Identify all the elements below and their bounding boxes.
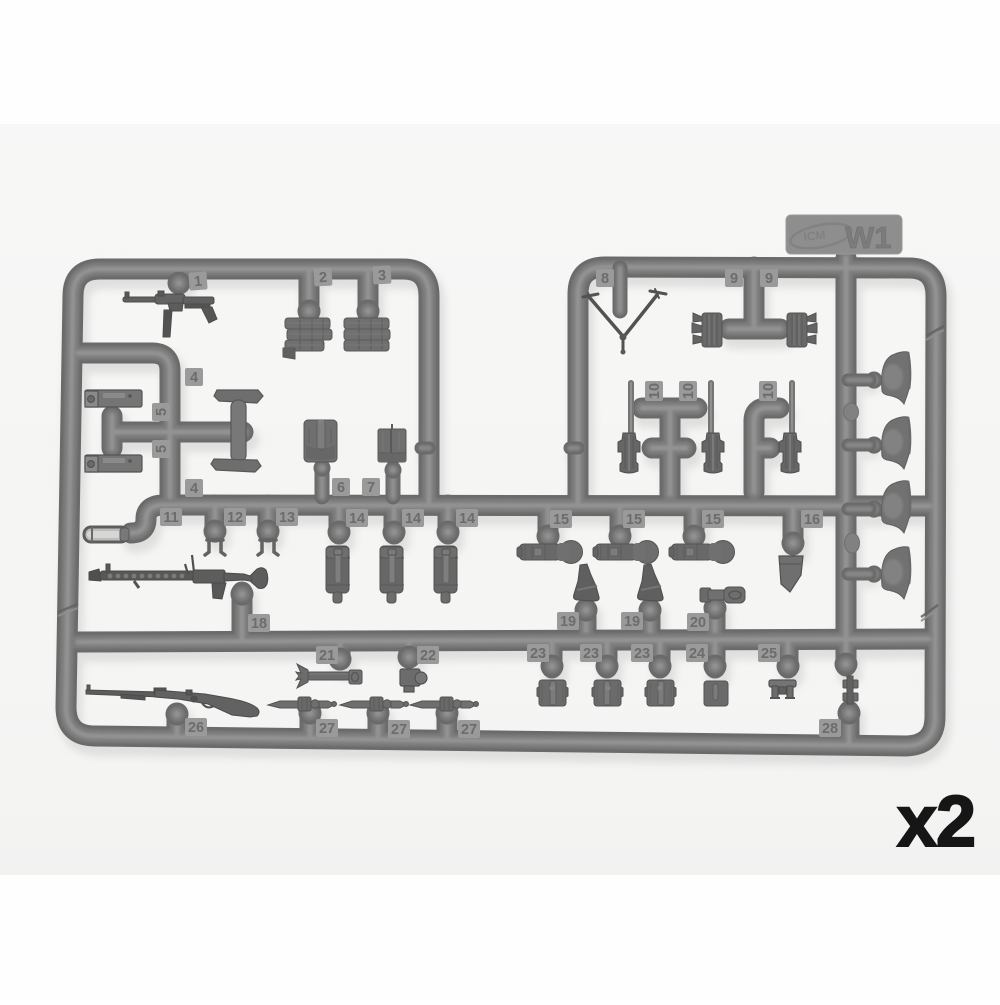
svg-text:23: 23 [634,646,650,662]
svg-text:15: 15 [705,512,721,528]
svg-text:16: 16 [804,512,820,528]
svg-text:23: 23 [583,646,599,662]
svg-text:5: 5 [154,445,170,453]
svg-text:10: 10 [681,383,697,399]
svg-text:19: 19 [560,614,576,630]
svg-text:24: 24 [689,646,705,662]
svg-text:27: 27 [461,722,477,738]
svg-text:6: 6 [337,480,345,496]
svg-text:25: 25 [761,646,777,662]
svg-text:10: 10 [761,383,777,399]
svg-text:2: 2 [319,270,328,286]
svg-text:19: 19 [624,614,640,630]
svg-text:26: 26 [188,720,204,736]
svg-text:23: 23 [530,646,546,662]
svg-text:14: 14 [349,511,365,527]
svg-text:15: 15 [626,512,642,528]
svg-text:9: 9 [730,271,738,287]
svg-text:11: 11 [163,510,178,526]
svg-text:28: 28 [822,721,838,737]
svg-text:3: 3 [378,268,387,284]
svg-text:10: 10 [647,383,663,399]
svg-text:4: 4 [190,481,198,497]
svg-text:4: 4 [190,370,198,386]
svg-text:27: 27 [391,722,407,738]
svg-text:27: 27 [319,721,335,737]
svg-text:13: 13 [279,510,295,526]
svg-text:18: 18 [251,616,267,632]
svg-text:ICM: ICM [803,228,826,244]
svg-text:14: 14 [405,511,421,527]
svg-text:1: 1 [193,274,202,291]
svg-text:20: 20 [690,615,706,631]
svg-text:15: 15 [553,512,569,528]
svg-text:8: 8 [601,271,609,287]
svg-text:21: 21 [319,648,335,664]
svg-text:7: 7 [367,480,375,496]
svg-text:14: 14 [459,511,475,527]
svg-text:x2: x2 [897,782,975,862]
svg-text:12: 12 [227,510,243,526]
svg-text:9: 9 [765,271,773,287]
svg-text:W1: W1 [845,220,892,255]
svg-text:22: 22 [420,648,436,664]
svg-text:5: 5 [154,408,170,416]
